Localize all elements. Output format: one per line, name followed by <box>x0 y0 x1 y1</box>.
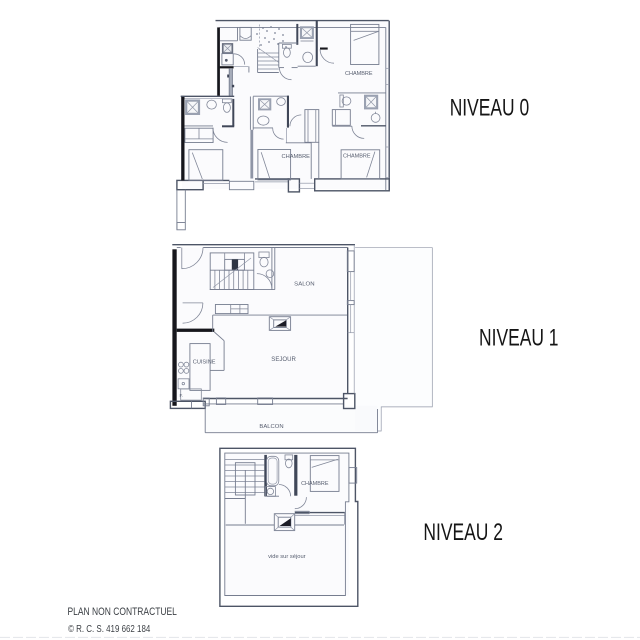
svg-text:SALON: SALON <box>294 282 314 288</box>
svg-text:F.: F. <box>180 393 184 398</box>
svg-text:CHAMBRE: CHAMBRE <box>343 154 371 160</box>
svg-text:BALCON: BALCON <box>259 424 283 430</box>
svg-text:PLAN NON CONTRACTUEL: PLAN NON CONTRACTUEL <box>68 606 177 618</box>
svg-text:CHAMBRE: CHAMBRE <box>282 154 311 160</box>
svg-text:CHAMBRE: CHAMBRE <box>301 481 329 487</box>
svg-text:NIVEAU 0: NIVEAU 0 <box>450 94 530 121</box>
svg-text:NIVEAU 1: NIVEAU 1 <box>479 324 559 351</box>
svg-text:SEJOUR: SEJOUR <box>271 357 296 363</box>
svg-text:CUISINE: CUISINE <box>193 360 216 366</box>
svg-text:CHAMBRE: CHAMBRE <box>345 71 373 77</box>
svg-text:vide sur séjour: vide sur séjour <box>268 554 306 560</box>
svg-text:© R. C. S. 419 662 184: © R. C. S. 419 662 184 <box>68 624 150 635</box>
svg-text:NIVEAU 2: NIVEAU 2 <box>423 519 503 546</box>
